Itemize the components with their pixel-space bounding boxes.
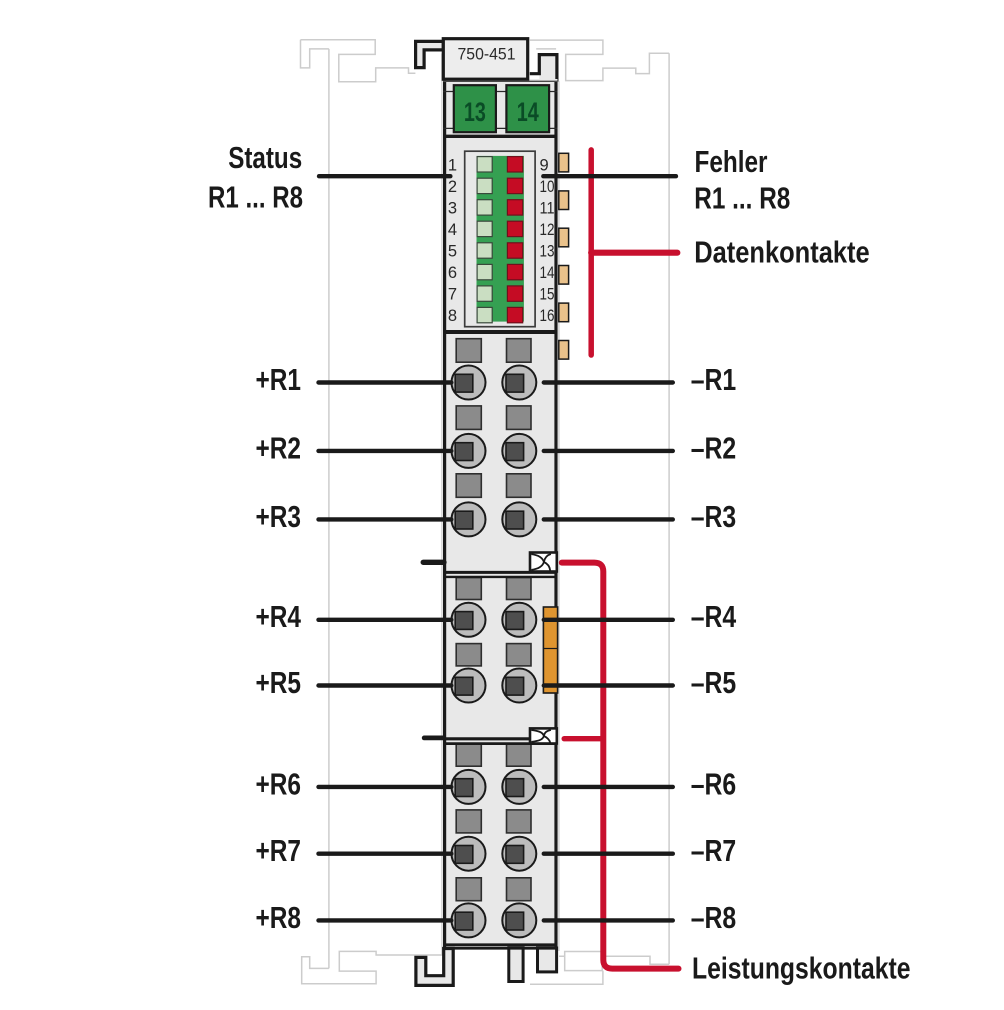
svg-text:3: 3 [448, 200, 457, 218]
svg-text:4: 4 [448, 221, 457, 239]
svg-text:+R5: +R5 [256, 666, 302, 700]
svg-text:–R7: –R7 [691, 834, 737, 868]
svg-text:–R4: –R4 [691, 600, 737, 634]
svg-text:2: 2 [448, 178, 457, 196]
svg-text:R1 ... R8: R1 ... R8 [694, 182, 790, 216]
svg-text:7: 7 [448, 286, 457, 304]
svg-text:8: 8 [448, 307, 457, 325]
svg-text:750-451: 750-451 [458, 45, 516, 64]
svg-text:–R2: –R2 [691, 431, 737, 465]
svg-text:16: 16 [540, 307, 555, 325]
svg-text:+R2: +R2 [256, 431, 302, 465]
svg-text:R1 ... R8: R1 ... R8 [208, 181, 303, 215]
svg-text:+R8: +R8 [256, 901, 302, 935]
svg-text:Fehler: Fehler [695, 145, 768, 179]
svg-text:14: 14 [517, 97, 539, 127]
svg-text:Status: Status [228, 141, 302, 175]
svg-text:6: 6 [448, 264, 457, 282]
svg-text:Datenkontakte: Datenkontakte [694, 236, 870, 270]
svg-text:13: 13 [540, 243, 555, 261]
svg-text:+R3: +R3 [256, 500, 302, 534]
svg-text:+R4: +R4 [256, 600, 302, 634]
svg-text:–R6: –R6 [691, 767, 737, 801]
svg-text:Leistungskontakte: Leistungskontakte [692, 952, 911, 986]
svg-text:14: 14 [540, 264, 555, 282]
svg-text:–R8: –R8 [691, 901, 737, 935]
svg-text:1: 1 [448, 156, 457, 174]
svg-text:9: 9 [540, 156, 549, 174]
svg-text:11: 11 [540, 200, 555, 218]
svg-text:–R3: –R3 [691, 500, 737, 534]
svg-text:5: 5 [448, 243, 457, 261]
svg-text:15: 15 [540, 286, 555, 304]
svg-text:10: 10 [540, 178, 555, 196]
svg-text:13: 13 [464, 97, 486, 127]
svg-text:–R1: –R1 [691, 363, 737, 397]
svg-text:+R6: +R6 [256, 767, 302, 801]
svg-text:–R5: –R5 [691, 666, 737, 700]
svg-text:+R7: +R7 [256, 834, 302, 868]
svg-text:12: 12 [540, 221, 555, 239]
svg-text:+R1: +R1 [256, 363, 302, 397]
